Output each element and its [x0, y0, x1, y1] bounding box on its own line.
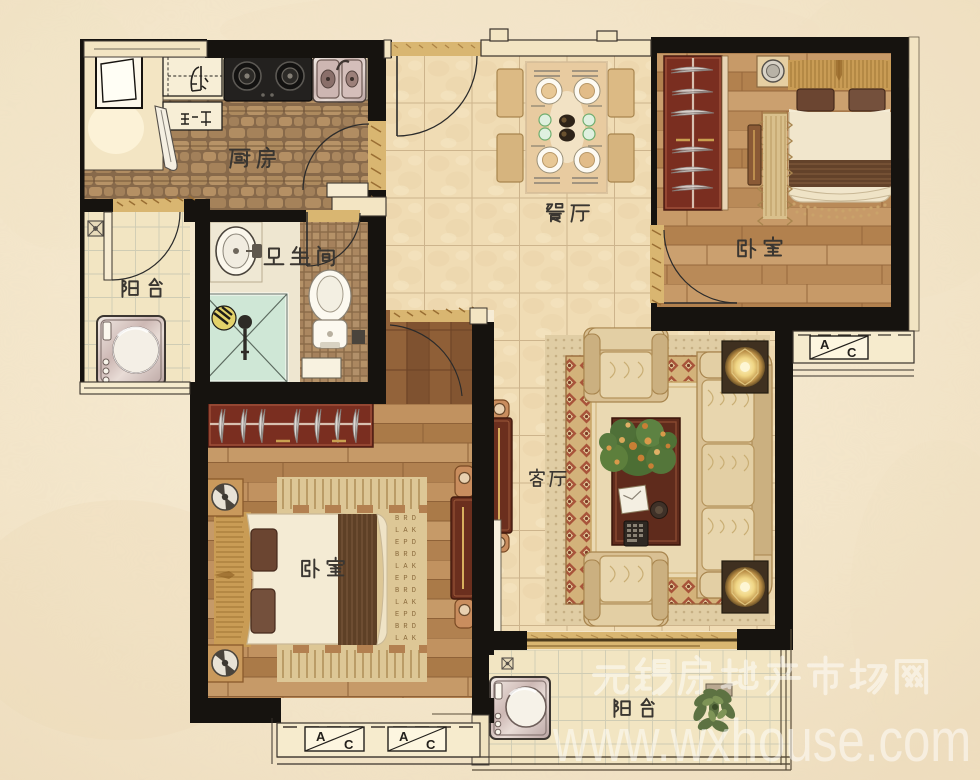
- svg-text:E P D: E P D: [395, 575, 416, 583]
- svg-text:www.wxhouse.com: www.wxhouse.com: [552, 706, 971, 774]
- svg-text:C: C: [847, 345, 857, 360]
- svg-text:E P D: E P D: [395, 539, 416, 547]
- svg-text:B R D: B R D: [395, 551, 416, 559]
- svg-text:A: A: [820, 337, 830, 352]
- svg-text:A: A: [399, 729, 409, 744]
- svg-text:L A K: L A K: [395, 527, 417, 535]
- svg-text:C: C: [344, 737, 354, 752]
- svg-text:C: C: [426, 737, 436, 752]
- svg-text:A: A: [316, 729, 326, 744]
- svg-text:L A K: L A K: [395, 563, 417, 571]
- svg-text:B R D: B R D: [395, 623, 416, 631]
- svg-text:B R D: B R D: [395, 515, 416, 523]
- svg-text:L A K: L A K: [395, 635, 417, 643]
- svg-text:E P D: E P D: [395, 611, 416, 619]
- svg-text:L A K: L A K: [395, 599, 417, 607]
- svg-text:B R D: B R D: [395, 587, 416, 595]
